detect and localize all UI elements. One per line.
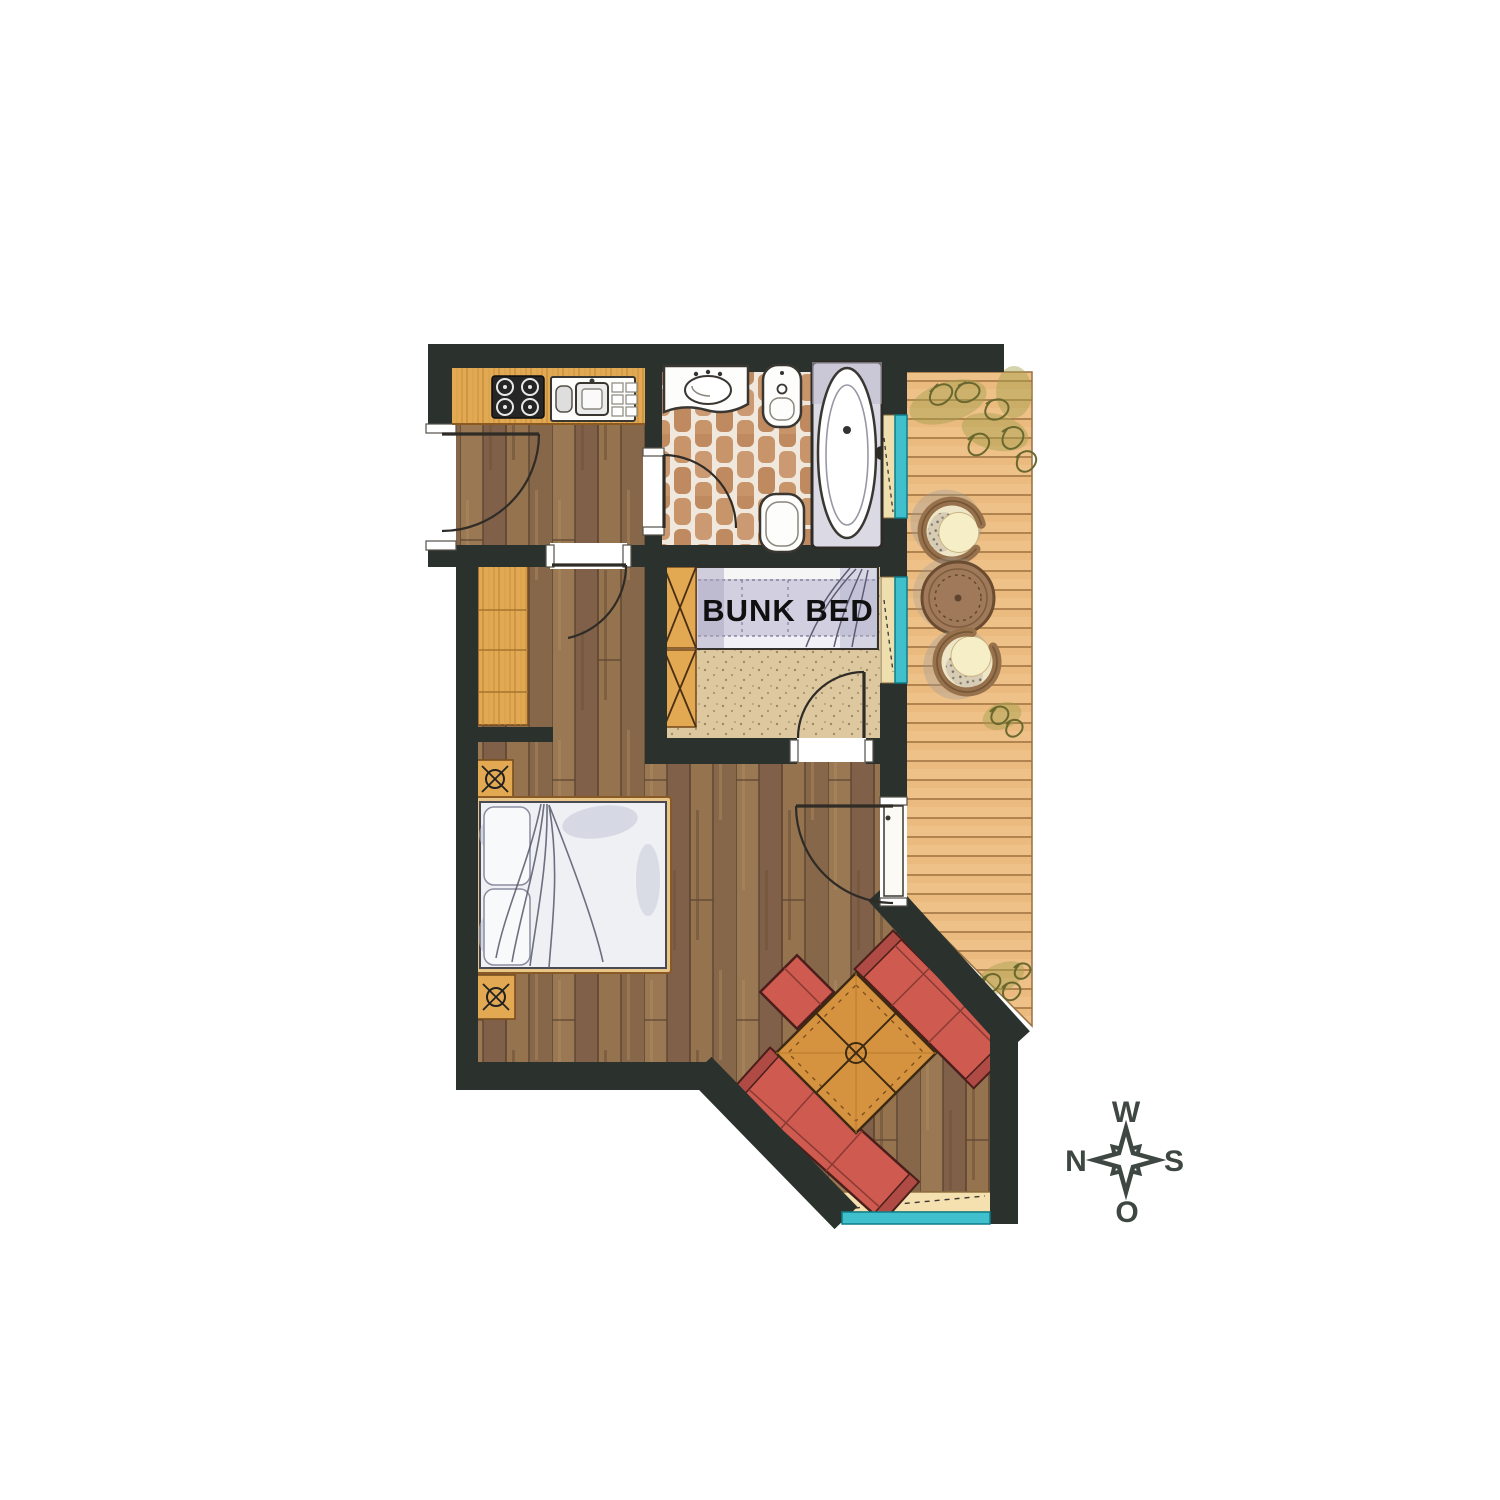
wardrobe <box>478 563 528 725</box>
bathroom-sink-icon <box>664 366 748 412</box>
compass-label-left: N <box>1065 1145 1087 1178</box>
compass-label-bottom: O <box>1115 1196 1138 1229</box>
toilet-icon <box>760 494 804 552</box>
compass-label-top: W <box>1112 1096 1141 1129</box>
kitchen-sink-icon <box>551 377 637 421</box>
bunk-bed-label: BUNK BED <box>702 593 874 628</box>
floor-plan-svg: BUNK BED <box>0 0 1500 1500</box>
kitchen <box>452 368 645 424</box>
bidet-icon <box>763 365 801 427</box>
bathtub-icon <box>812 362 882 548</box>
lamp-icon <box>483 984 509 1010</box>
bunk-ladder-icon <box>664 567 696 727</box>
bathroom-window <box>881 415 907 518</box>
compass-label-right: S <box>1164 1145 1184 1178</box>
nightstand-top <box>477 760 513 798</box>
door-handle-icon <box>886 816 891 821</box>
nook-window <box>842 1212 990 1224</box>
stove-icon <box>492 376 544 418</box>
compass-rose: W S O N <box>1065 1096 1184 1229</box>
bunk-room-window <box>881 577 907 683</box>
compass-star-big <box>1094 1128 1158 1192</box>
lamp-icon <box>482 766 508 792</box>
floor-plan-page: BUNK BED <box>0 0 1500 1500</box>
double-bed <box>475 797 671 973</box>
nightstand-bottom <box>477 975 515 1019</box>
